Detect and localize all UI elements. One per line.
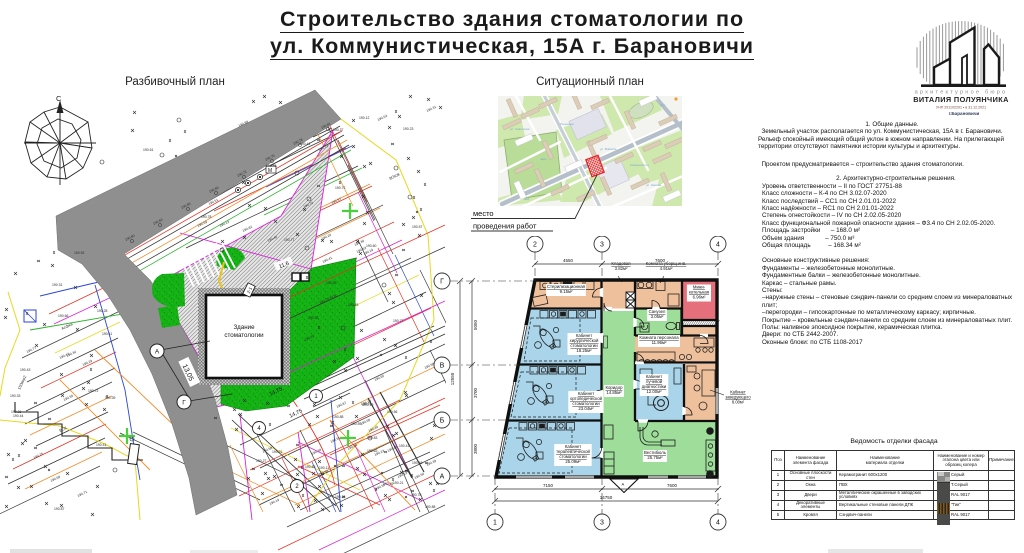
svg-text:190.92: 190.92 (74, 251, 84, 255)
svg-text:проведения работ: проведения работ (473, 222, 537, 231)
svg-text:190.72: 190.72 (335, 186, 345, 190)
svg-text:190.39: 190.39 (326, 281, 336, 285)
svg-text:190.75: 190.75 (33, 452, 44, 460)
svg-text:190.78: 190.78 (411, 493, 421, 497)
svg-text:190.11: 190.11 (102, 332, 112, 336)
svg-text:190.55: 190.55 (63, 394, 74, 402)
svg-text:190.41: 190.41 (322, 256, 333, 264)
svg-text:190.45: 190.45 (387, 445, 398, 453)
svg-text:190.56: 190.56 (387, 410, 397, 414)
svg-text:190.77: 190.77 (26, 346, 37, 354)
svg-text:12550: 12550 (450, 372, 455, 385)
svg-text:190.83: 190.83 (305, 465, 315, 469)
svg-text:190.66: 190.66 (374, 374, 385, 382)
svg-text:4550: 4550 (563, 258, 574, 263)
svg-text:парк: парк (540, 157, 547, 161)
svg-text:190.78: 190.78 (201, 215, 211, 219)
svg-text:25.75м²: 25.75м² (647, 455, 663, 460)
svg-text:190.41: 190.41 (300, 142, 310, 146)
svg-text:190.39: 190.39 (105, 396, 115, 400)
svg-text:7150: 7150 (543, 483, 554, 488)
svg-text:3800: 3800 (473, 443, 478, 454)
svg-text:пр-т: пр-т (660, 103, 666, 107)
svg-text:190.41: 190.41 (399, 444, 409, 448)
svg-text:190.41: 190.41 (96, 443, 106, 447)
svg-text:190.33: 190.33 (10, 394, 20, 398)
svg-text:190.28: 190.28 (335, 495, 345, 499)
svg-text:1: 1 (493, 520, 497, 527)
svg-text:190.21: 190.21 (393, 481, 403, 485)
svg-text:6.96м²: 6.96м² (693, 295, 706, 300)
svg-text:3.82м²: 3.82м² (615, 266, 628, 271)
svg-text:190.48: 190.48 (412, 461, 422, 465)
svg-text:Тельмана: Тельмана (560, 122, 574, 126)
svg-text:190.88: 190.88 (333, 415, 343, 419)
svg-text:190.63: 190.63 (377, 114, 388, 122)
svg-text:190.13: 190.13 (397, 471, 408, 479)
svg-text:190.77: 190.77 (284, 238, 294, 242)
svg-text:М: М (268, 168, 272, 174)
svg-text:Здание: Здание (233, 324, 255, 331)
svg-text:В: В (440, 363, 445, 370)
svg-text:190.87: 190.87 (336, 401, 347, 409)
svg-text:стоматологии: стоматологии (224, 332, 264, 339)
svg-text:190.44: 190.44 (13, 414, 23, 418)
svg-text:Г: Г (440, 279, 444, 286)
svg-text:190.68: 190.68 (360, 418, 371, 426)
svg-text:190.19: 190.19 (269, 498, 280, 506)
svg-text:УНП 291102291 • в 31.12.2021: УНП 291102291 • в 31.12.2021 (936, 106, 986, 110)
svg-text:190.49: 190.49 (383, 482, 393, 486)
svg-text:2: 2 (533, 242, 537, 249)
svg-text:190.21: 190.21 (272, 450, 282, 454)
svg-text:190.61: 190.61 (143, 148, 153, 152)
svg-text:14.85м²: 14.85м² (606, 390, 622, 395)
svg-text:4: 4 (716, 242, 720, 249)
svg-text:Б: Б (440, 418, 445, 425)
svg-text:190.51: 190.51 (330, 436, 341, 444)
svg-text:190.57: 190.57 (412, 225, 422, 229)
svg-text:Г: Г (182, 400, 186, 407)
svg-text:190.46: 190.46 (368, 425, 379, 433)
svg-text:190.71: 190.71 (77, 490, 88, 498)
svg-text:190.66: 190.66 (58, 314, 68, 318)
svg-text:7600: 7600 (667, 483, 678, 488)
svg-text:190.28: 190.28 (97, 309, 107, 313)
svg-text:190.43: 190.43 (20, 368, 30, 372)
svg-text:г.Барановичи: г.Барановичи (949, 111, 980, 116)
svg-text:ул. Ленина: ул. Ленина (646, 183, 661, 187)
svg-text:190.12: 190.12 (359, 116, 369, 120)
svg-text:190.57: 190.57 (331, 197, 342, 205)
svg-text:Коммунистич.: Коммунистич. (630, 163, 650, 167)
svg-text:25.09м²: 25.09м² (565, 459, 581, 464)
svg-text:8.00м²: 8.00м² (732, 400, 745, 405)
svg-text:9.15м²: 9.15м² (560, 289, 573, 294)
svg-text:190.50: 190.50 (414, 472, 425, 480)
svg-text:18.25м²: 18.25м² (576, 348, 592, 353)
svg-text:А: А (440, 474, 445, 481)
svg-text:С: С (56, 94, 62, 103)
svg-text:5050: 5050 (473, 319, 478, 330)
svg-text:190.31: 190.31 (11, 410, 21, 414)
svg-text:190.34: 190.34 (66, 350, 77, 358)
svg-text:14750: 14750 (600, 495, 613, 500)
svg-text:3.05м²: 3.05м² (651, 314, 664, 319)
svg-text:место: место (473, 209, 494, 218)
svg-text:190.72: 190.72 (88, 389, 98, 393)
svg-text:А: А (155, 349, 160, 356)
svg-text:190.77: 190.77 (393, 319, 403, 323)
svg-text:190.31: 190.31 (52, 283, 62, 287)
svg-text:ул. Войкова: ул. Войкова (600, 147, 617, 151)
svg-text:3: 3 (600, 242, 604, 249)
svg-text:4.91м²: 4.91м² (660, 266, 673, 271)
svg-text:ул. Советская: ул. Советская (510, 127, 530, 131)
svg-text:наб.: наб. (524, 197, 530, 201)
svg-text:150кир2: 150кир2 (16, 374, 27, 391)
svg-text:190.27: 190.27 (256, 459, 266, 463)
svg-text:190.37: 190.37 (333, 128, 343, 132)
svg-text:7600: 7600 (655, 258, 666, 263)
svg-text:190.13: 190.13 (219, 220, 230, 228)
svg-text:3: 3 (600, 520, 604, 527)
svg-text:12.00м²: 12.00м² (646, 389, 662, 394)
svg-text:23.04м²: 23.04м² (578, 406, 594, 411)
svg-text:ВИТАЛИЯ ПОЛУЯНЧИКА: ВИТАЛИЯ ПОЛУЯНЧИКА (913, 95, 1009, 104)
svg-text:3700: 3700 (473, 387, 478, 398)
svg-text:9ОКЖ: 9ОКЖ (388, 171, 401, 180)
svg-text:190.23: 190.23 (403, 127, 413, 131)
svg-text:4: 4 (716, 520, 720, 527)
svg-text:190.59: 190.59 (351, 422, 361, 426)
svg-text:190.93: 190.93 (308, 316, 318, 320)
svg-text:11.96м²: 11.96м² (652, 340, 667, 345)
svg-text:А: А (622, 482, 625, 487)
svg-text:190.45: 190.45 (348, 303, 358, 307)
svg-text:190.45: 190.45 (266, 164, 276, 168)
svg-text:190.87: 190.87 (54, 507, 64, 511)
svg-text:190.31: 190.31 (426, 105, 437, 113)
